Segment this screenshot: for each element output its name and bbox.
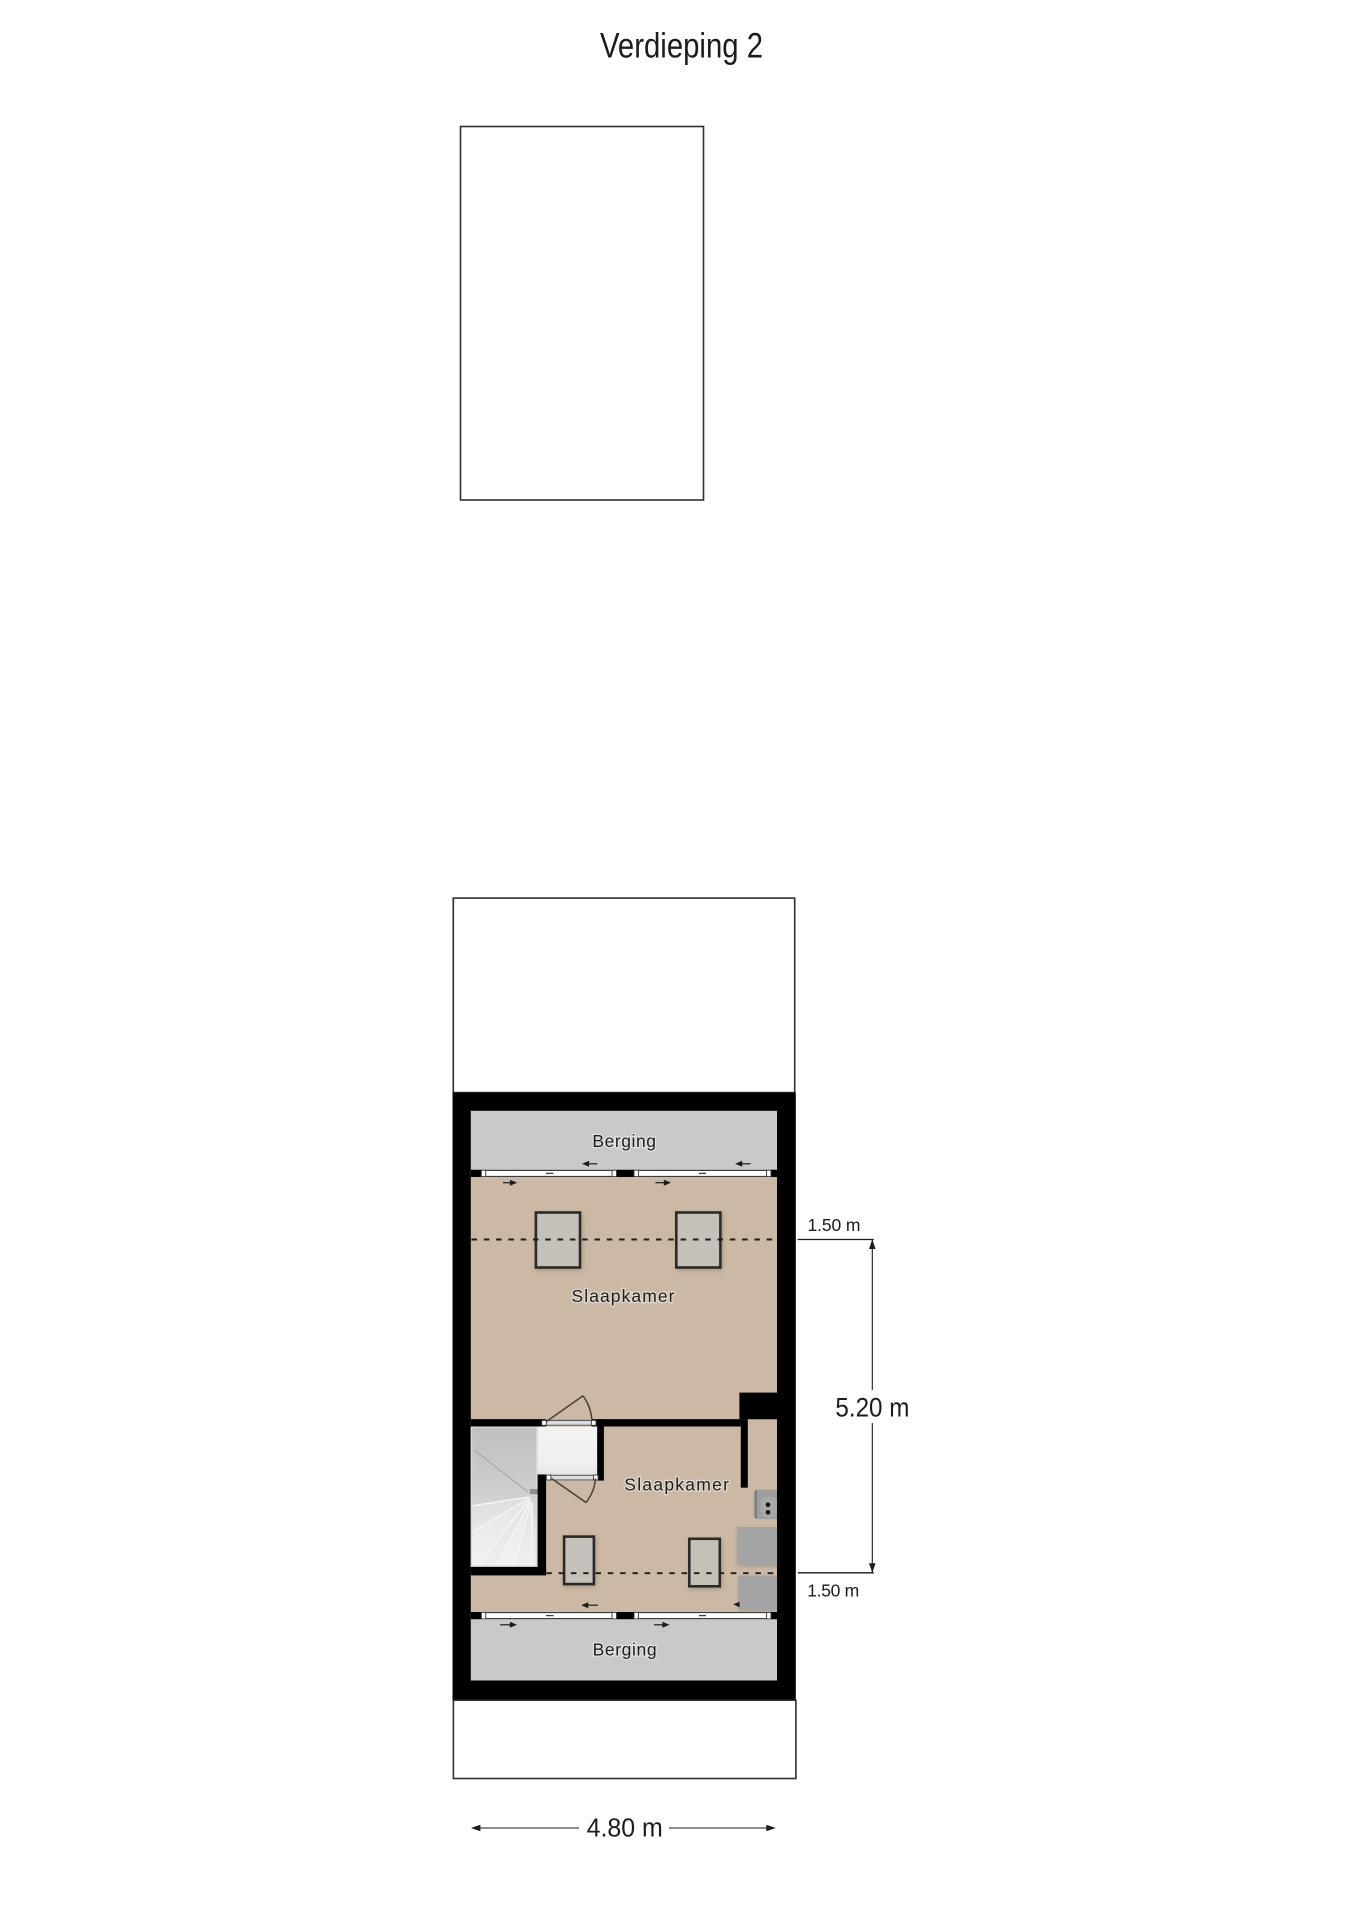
svg-text:Verdieping 2: Verdieping 2 [600,27,763,66]
svg-text:1.50 m: 1.50 m [808,1215,861,1235]
svg-text:Berging: Berging [592,1131,656,1151]
svg-text:Slaapkamer: Slaapkamer [624,1475,729,1495]
svg-text:Berging: Berging [593,1640,657,1660]
svg-text:4.80 m: 4.80 m [587,1815,663,1843]
svg-text:5.20 m: 5.20 m [835,1393,909,1423]
svg-text:1.50 m: 1.50 m [807,1580,859,1600]
svg-text:Slaapkamer: Slaapkamer [572,1286,675,1306]
